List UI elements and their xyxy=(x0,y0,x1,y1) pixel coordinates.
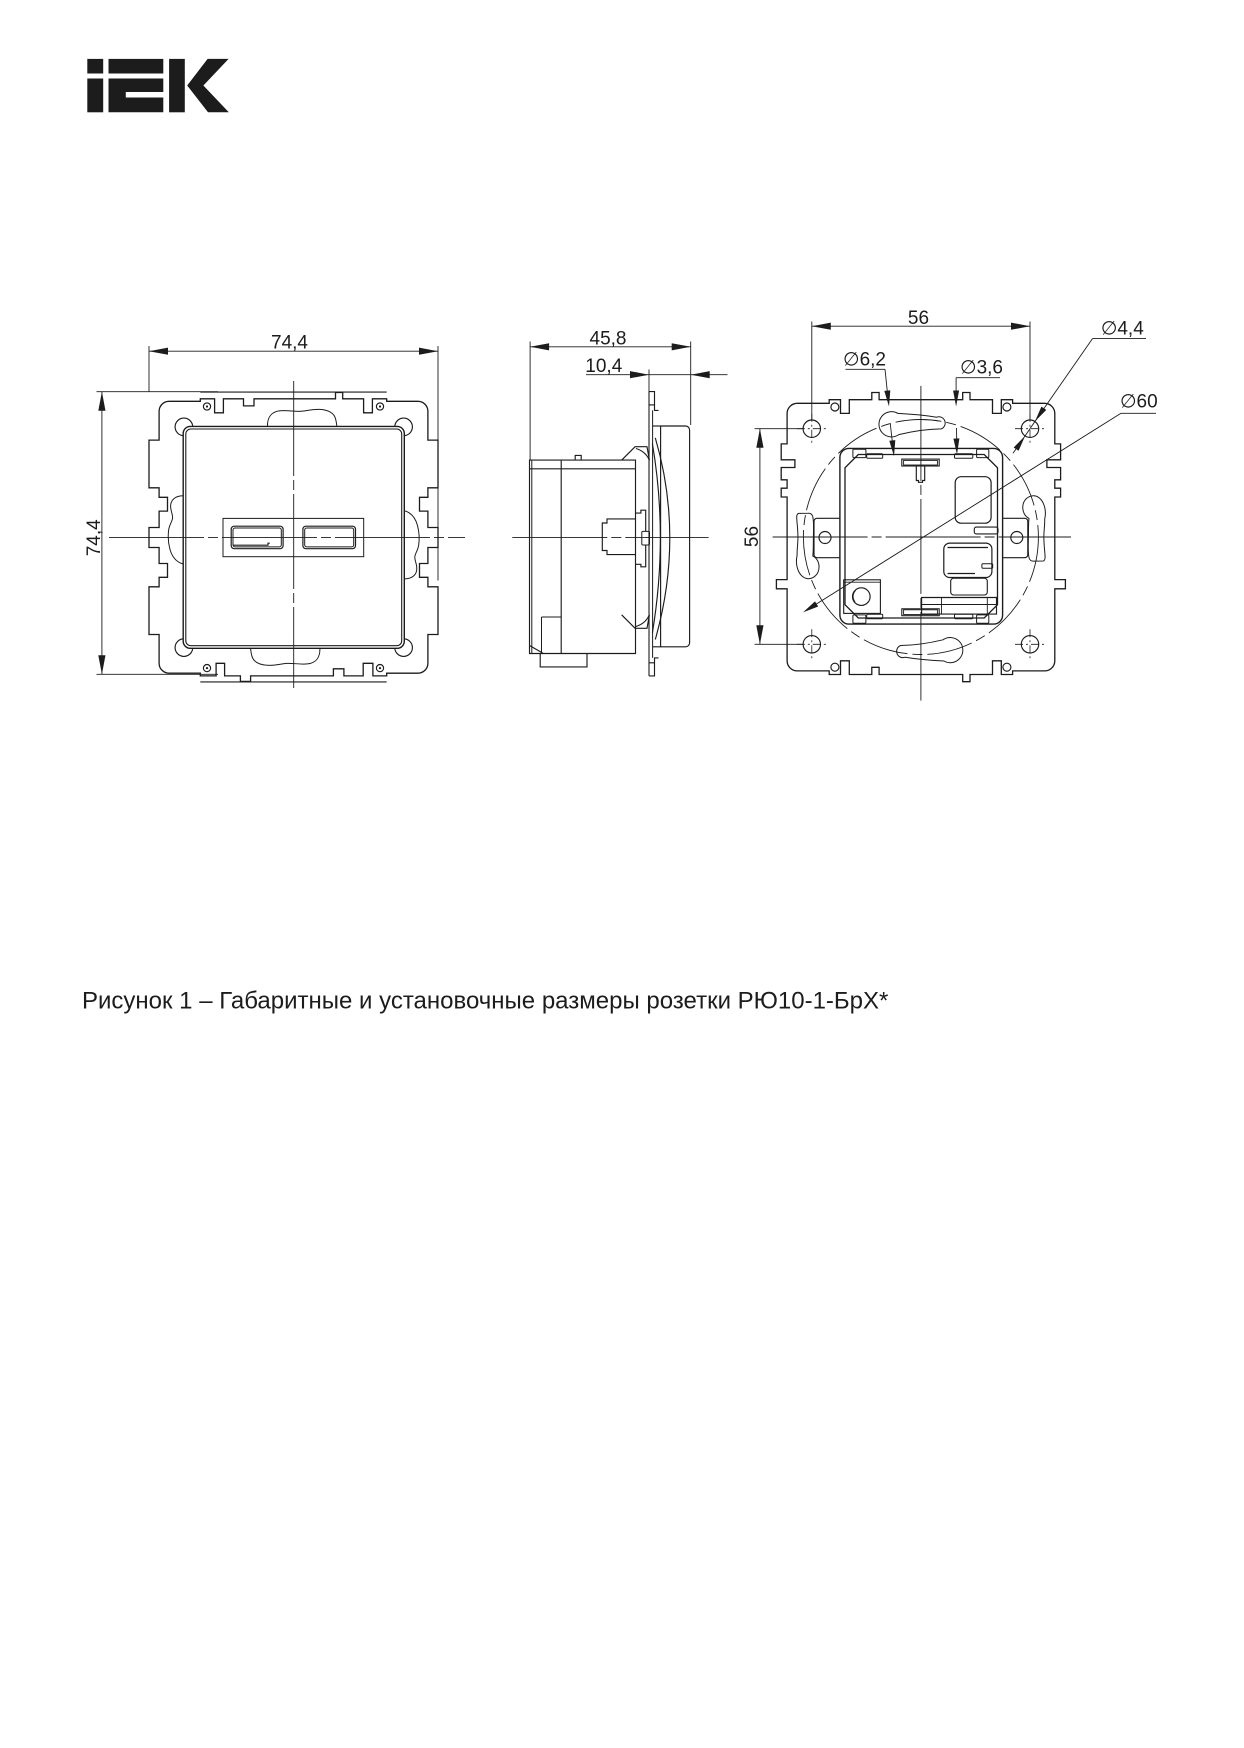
svg-text:Рисунок 1 – Габаритные и устан: Рисунок 1 – Габаритные и установочные ра… xyxy=(82,987,888,1014)
svg-text:∅4,4: ∅4,4 xyxy=(1101,318,1144,339)
svg-text:56: 56 xyxy=(908,308,929,329)
svg-text:∅6,2: ∅6,2 xyxy=(843,349,886,370)
svg-text:∅3,6: ∅3,6 xyxy=(960,358,1003,379)
svg-text:74,4: 74,4 xyxy=(84,519,105,556)
svg-text:56: 56 xyxy=(742,526,763,547)
svg-text:∅60: ∅60 xyxy=(1120,391,1158,412)
svg-text:74,4: 74,4 xyxy=(271,333,308,354)
svg-text:45,8: 45,8 xyxy=(590,328,627,349)
svg-text:10,4: 10,4 xyxy=(585,356,622,377)
